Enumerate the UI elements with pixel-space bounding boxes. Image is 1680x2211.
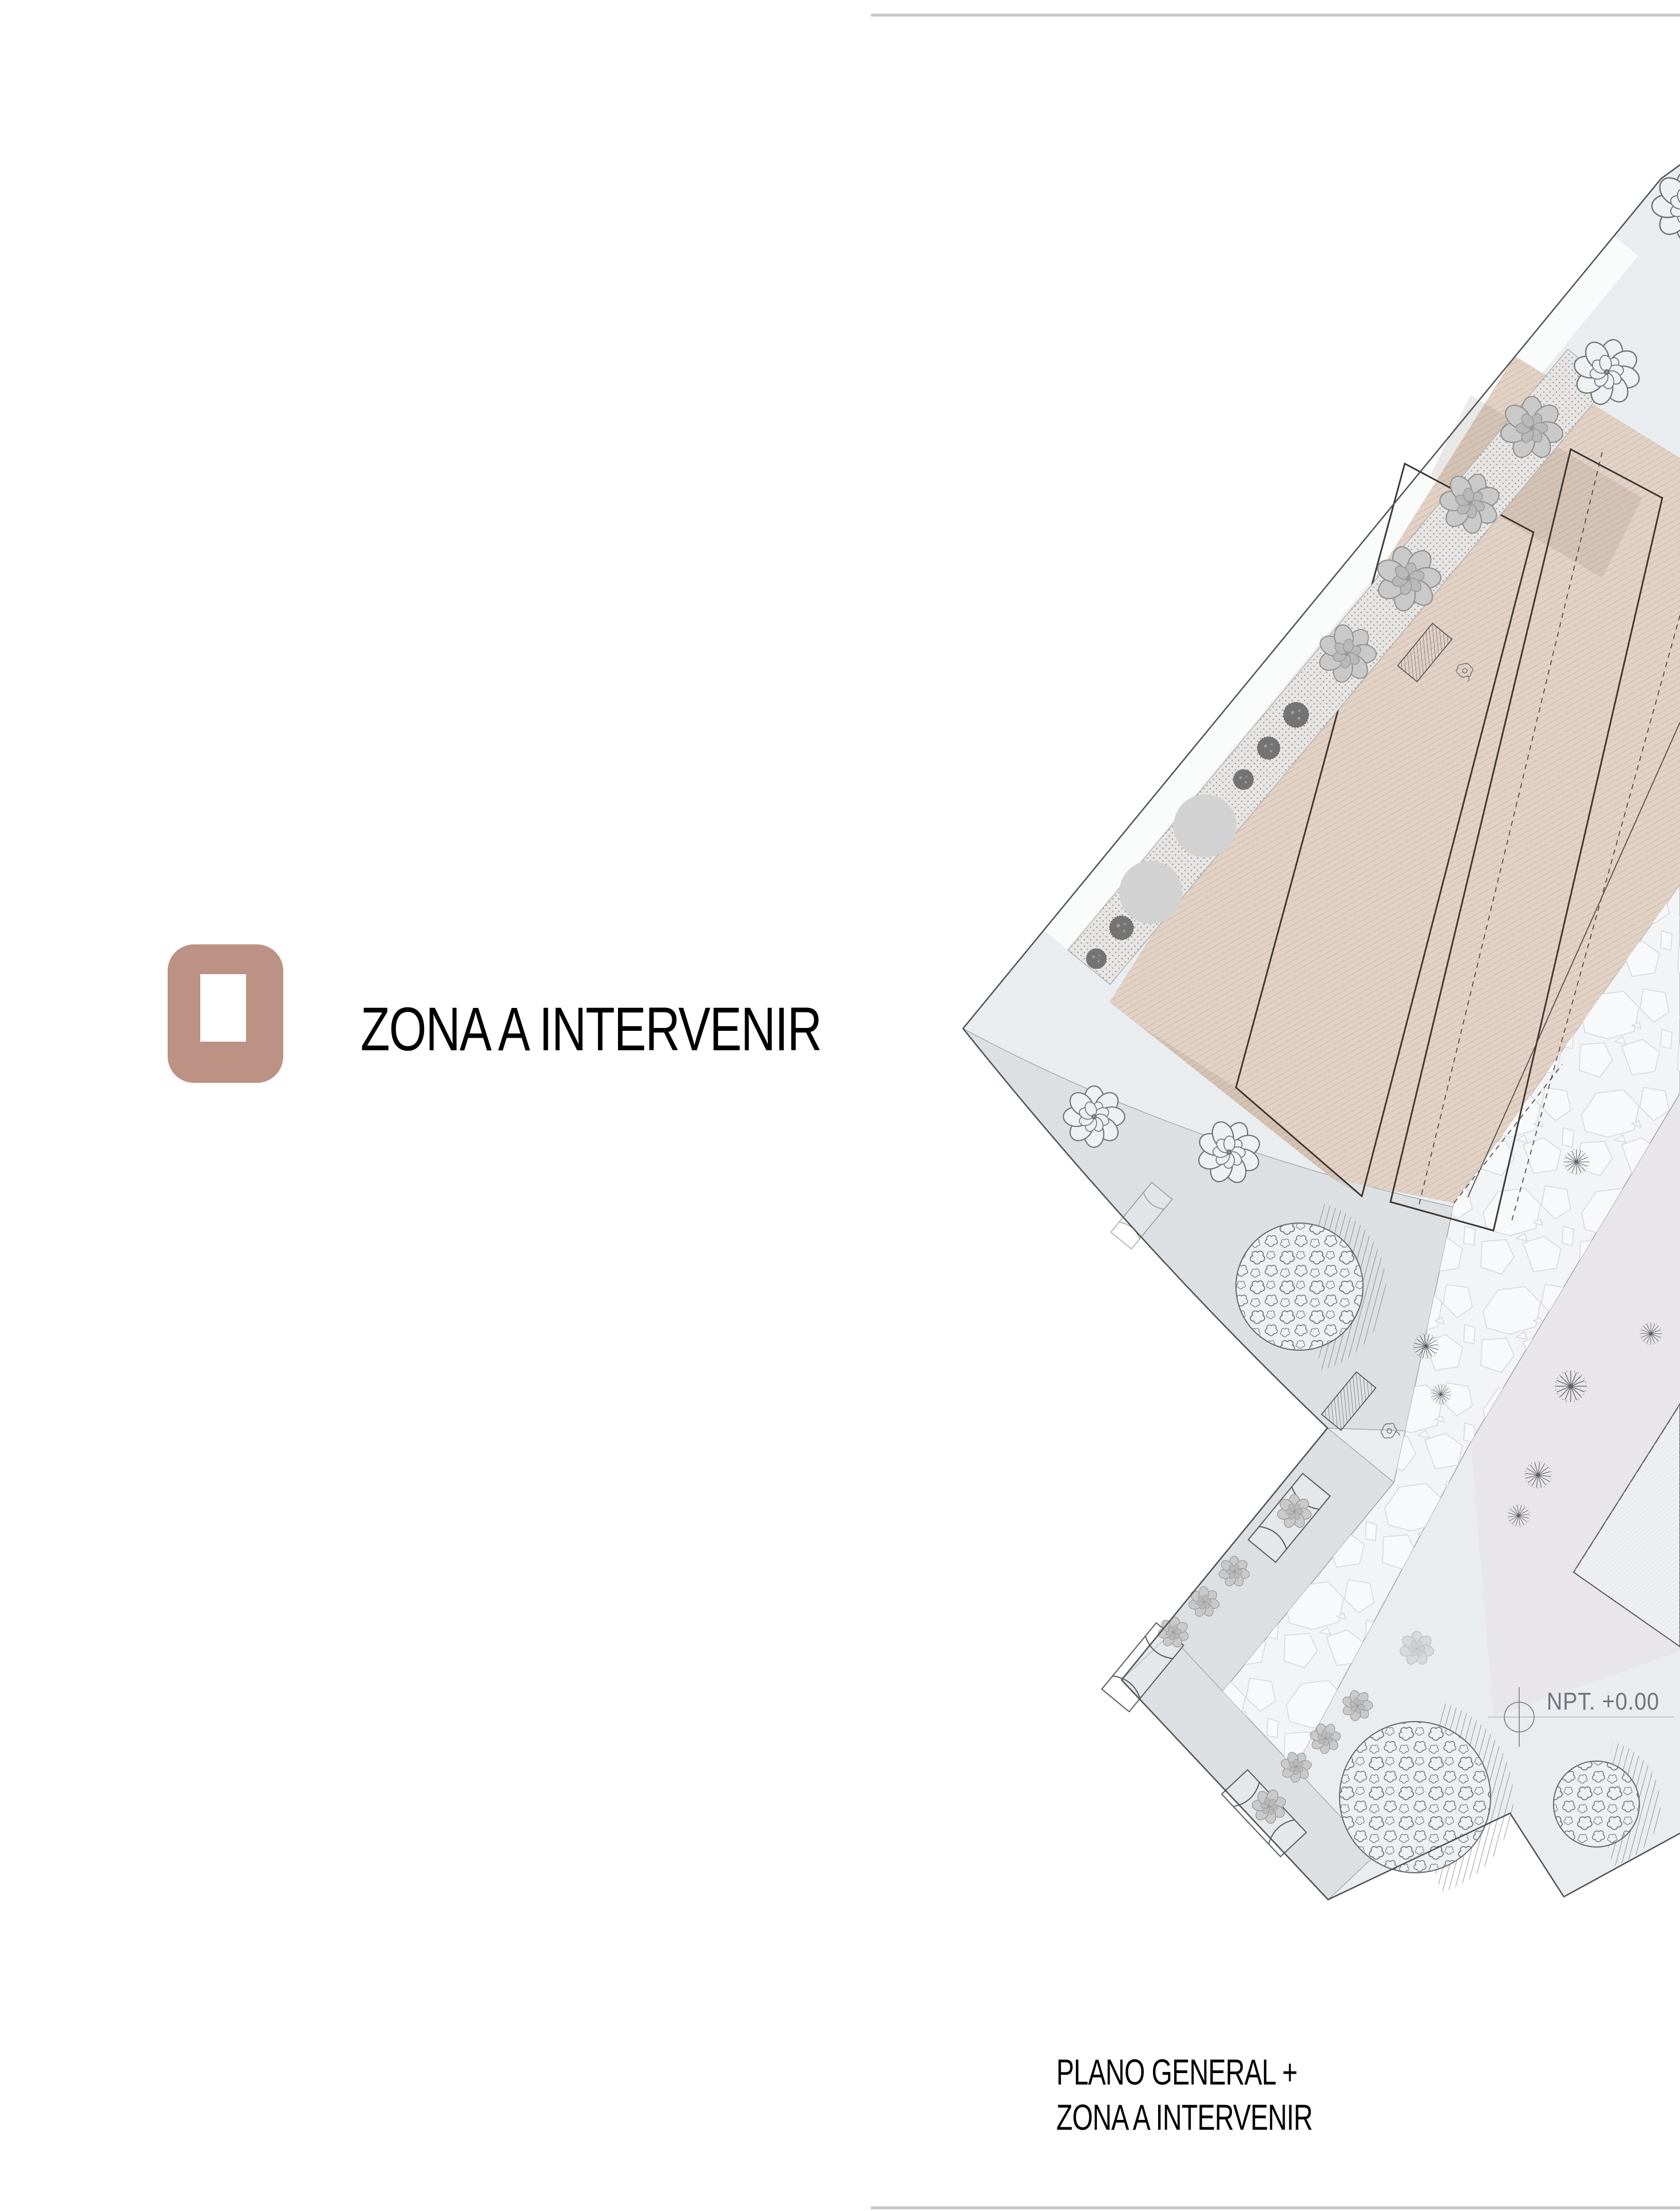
plant-icon [1555,1371,1586,1402]
sheet-caption: PLANO GENERAL + ZONA A INTERVENIR [1056,2050,1313,2141]
planter-disc [1119,861,1182,924]
npt-label: NPT. +0.00 [1547,1687,1659,1715]
shrub-icon [1110,916,1134,940]
shrub-icon [1233,769,1253,789]
caption-line-1: PLANO GENERAL + [1056,2050,1313,2095]
plant-icon [1564,1149,1588,1174]
shrub-icon [1257,737,1280,760]
site-plan-drawing: NPT. +0.00 [0,0,1680,2211]
sheet-page: NPT. +0.00 ZONA A INTERVENIR PLANO GENER… [0,0,1680,2211]
legend-label: ZONA A INTERVENIR [360,993,821,1065]
planter-disc [1174,794,1237,857]
zone-swatch-window [200,974,246,1042]
zone-swatch-icon [168,944,283,1083]
caption-line-2: ZONA A INTERVENIR [1056,2095,1313,2141]
shrub-icon [1283,702,1309,727]
shrub-icon [1086,948,1106,968]
